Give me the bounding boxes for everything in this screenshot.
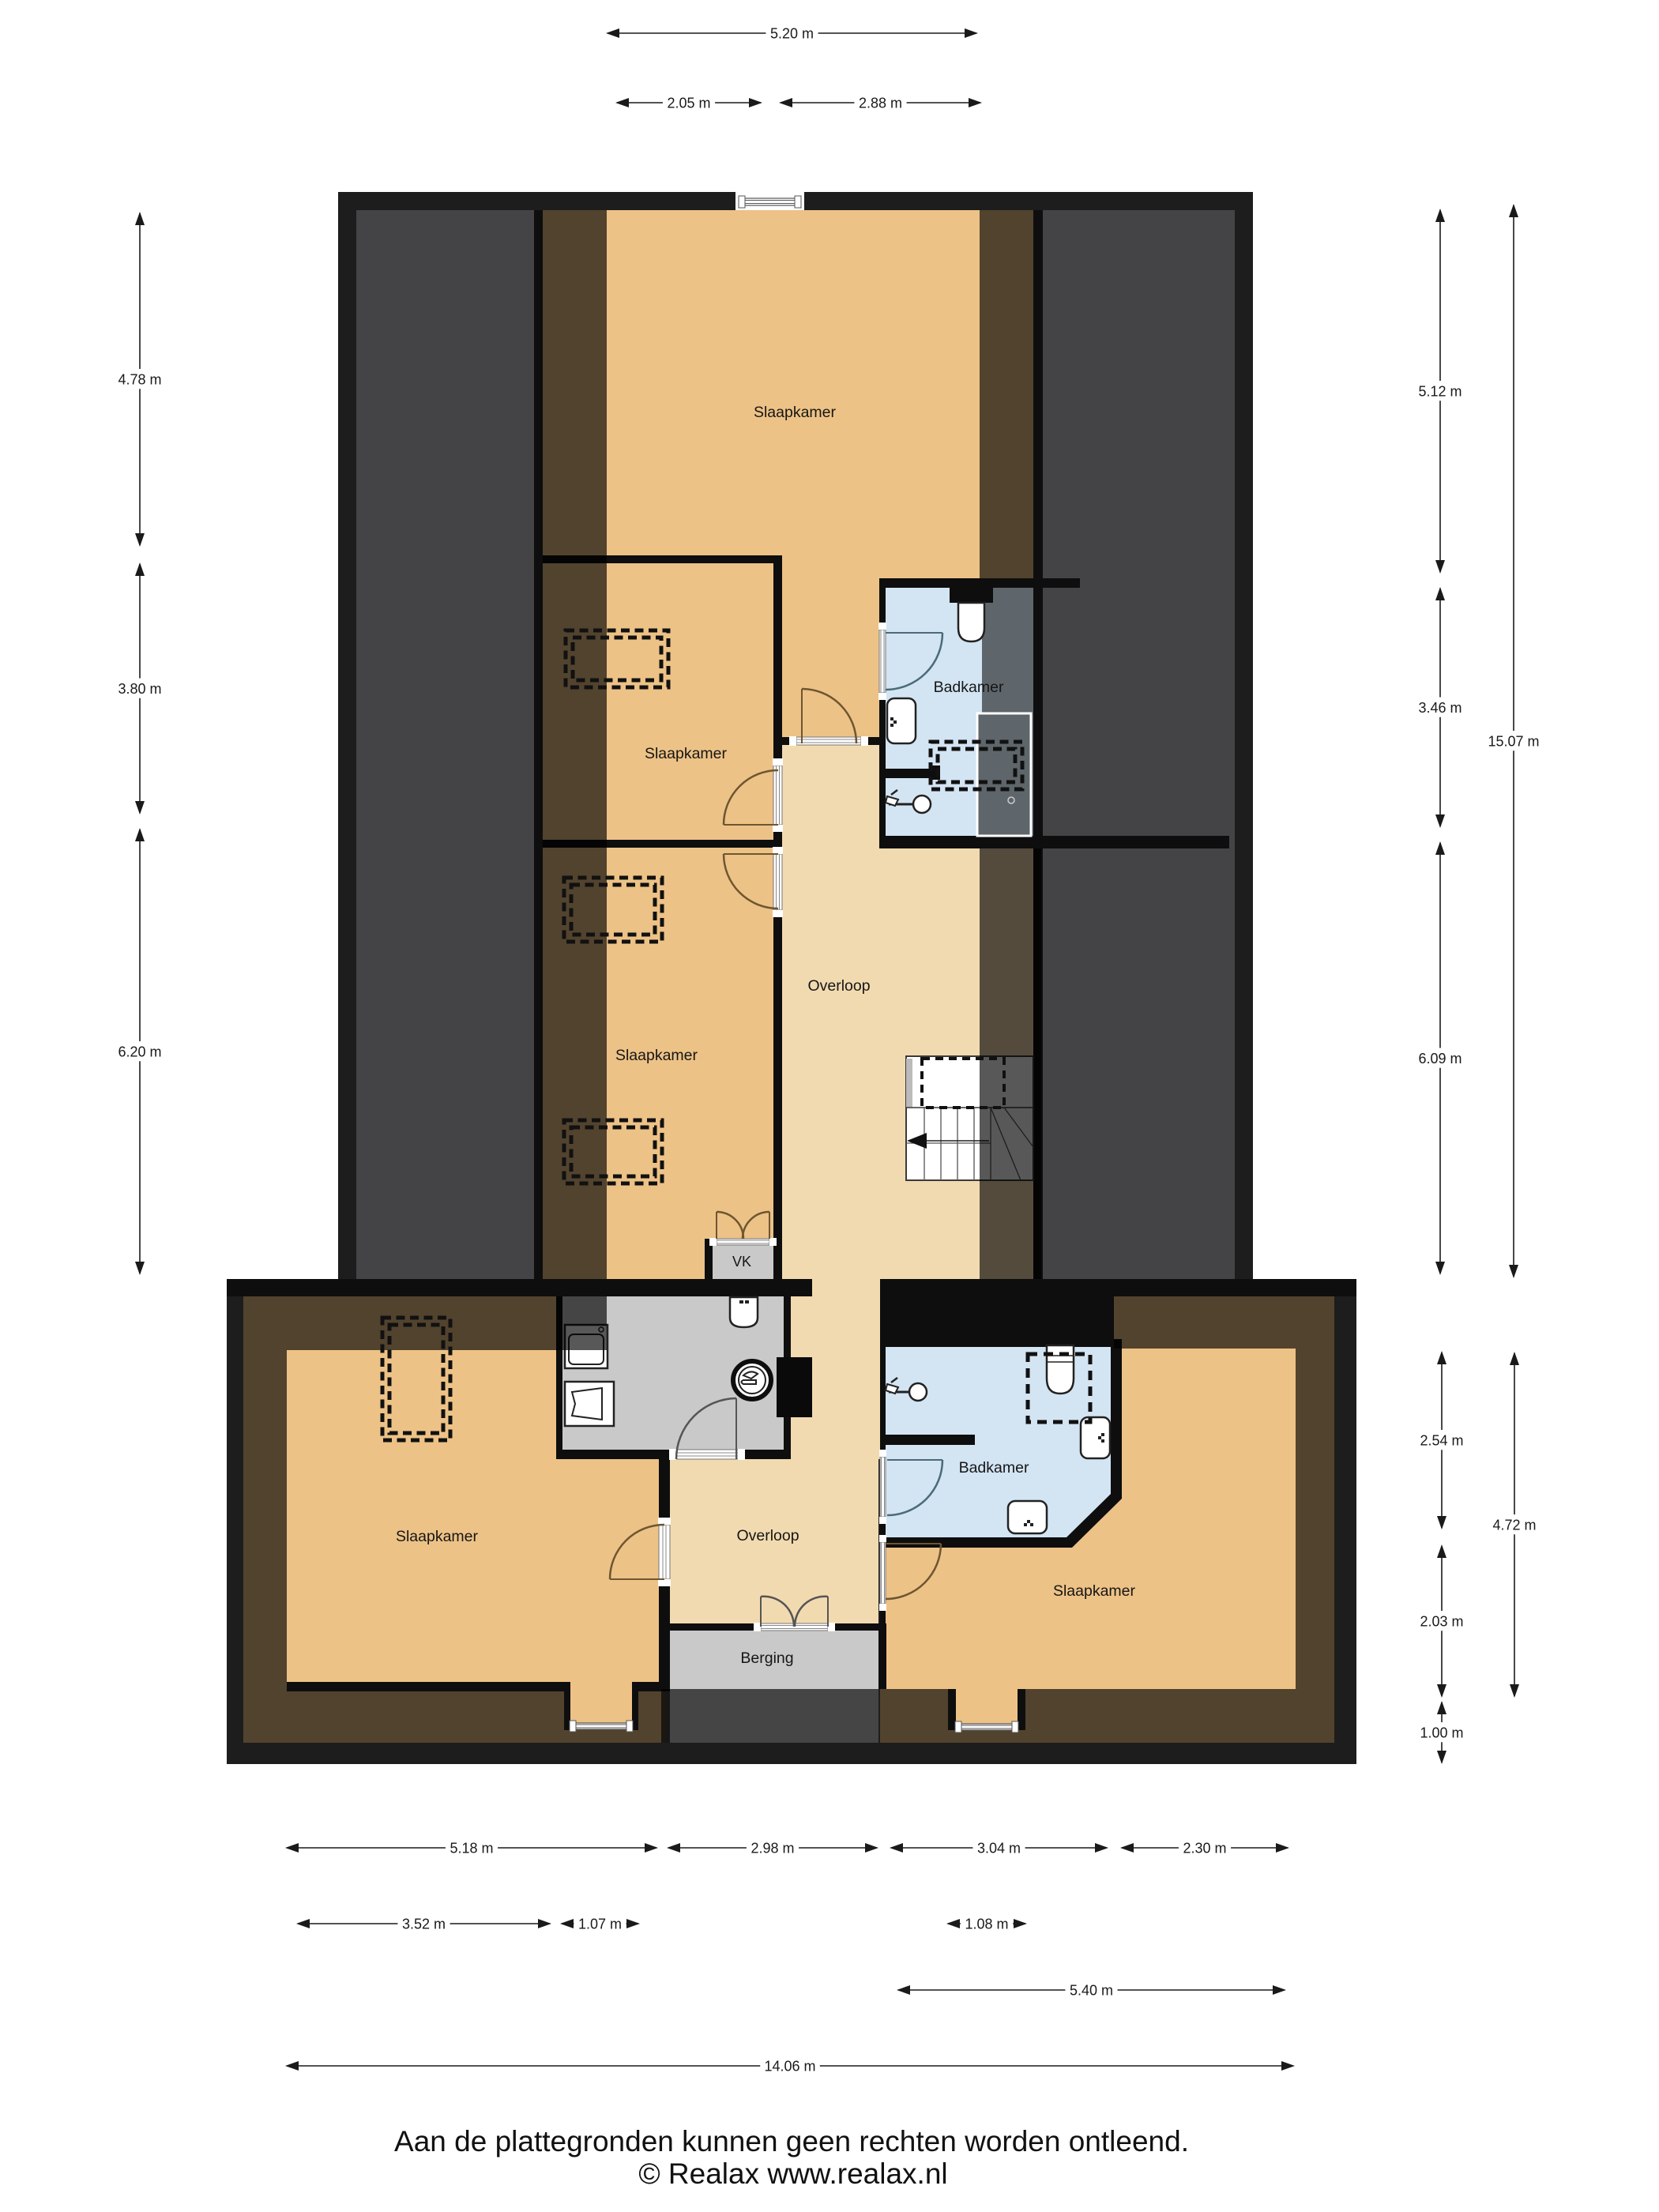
svg-text:3.46 m: 3.46 m — [1418, 700, 1461, 716]
svg-text:6.20 m: 6.20 m — [118, 1044, 161, 1059]
svg-text:1.08 m: 1.08 m — [965, 1916, 1008, 1932]
svg-text:© Realax www.realax.nl: © Realax www.realax.nl — [638, 2157, 947, 2190]
svg-text:VK: VK — [732, 1254, 751, 1270]
svg-text:2.30 m: 2.30 m — [1183, 1840, 1226, 1856]
svg-text:Slaapkamer: Slaapkamer — [754, 404, 837, 421]
svg-text:Slaapkamer: Slaapkamer — [645, 745, 728, 762]
svg-text:5.40 m: 5.40 m — [1070, 1982, 1113, 1998]
svg-text:3.04 m: 3.04 m — [977, 1840, 1021, 1856]
svg-text:14.06 m: 14.06 m — [764, 2058, 815, 2074]
svg-text:1.07 m: 1.07 m — [578, 1916, 622, 1932]
svg-text:6.09 m: 6.09 m — [1418, 1051, 1461, 1066]
svg-text:5.12 m: 5.12 m — [1418, 383, 1461, 399]
svg-text:2.88 m: 2.88 m — [859, 95, 902, 111]
svg-text:2.05 m: 2.05 m — [667, 95, 710, 111]
svg-text:Slaapkamer: Slaapkamer — [615, 1047, 698, 1064]
svg-text:5.20 m: 5.20 m — [770, 25, 814, 41]
svg-text:Slaapkamer: Slaapkamer — [1053, 1582, 1136, 1600]
svg-text:5.18 m: 5.18 m — [450, 1840, 493, 1856]
svg-text:3.52 m: 3.52 m — [402, 1916, 446, 1932]
svg-text:Slaapkamer: Slaapkamer — [396, 1528, 479, 1545]
svg-text:Overloop: Overloop — [736, 1527, 799, 1544]
svg-text:Berging: Berging — [740, 1650, 793, 1667]
svg-text:Badkamer: Badkamer — [959, 1459, 1029, 1477]
svg-text:15.07 m: 15.07 m — [1488, 733, 1539, 749]
svg-text:2.03 m: 2.03 m — [1420, 1613, 1463, 1629]
svg-text:4.72 m: 4.72 m — [1492, 1517, 1536, 1533]
svg-text:2.54 m: 2.54 m — [1420, 1432, 1463, 1448]
svg-text:3.80 m: 3.80 m — [118, 681, 161, 697]
svg-text:Aan de plattegronden kunnen ge: Aan de plattegronden kunnen geen rechten… — [394, 2125, 1189, 2157]
svg-text:1.00 m: 1.00 m — [1420, 1725, 1463, 1740]
svg-text:2.98 m: 2.98 m — [750, 1840, 794, 1856]
svg-text:Overloop: Overloop — [807, 977, 870, 995]
svg-text:4.78 m: 4.78 m — [118, 371, 161, 387]
svg-text:Badkamer: Badkamer — [934, 679, 1004, 696]
